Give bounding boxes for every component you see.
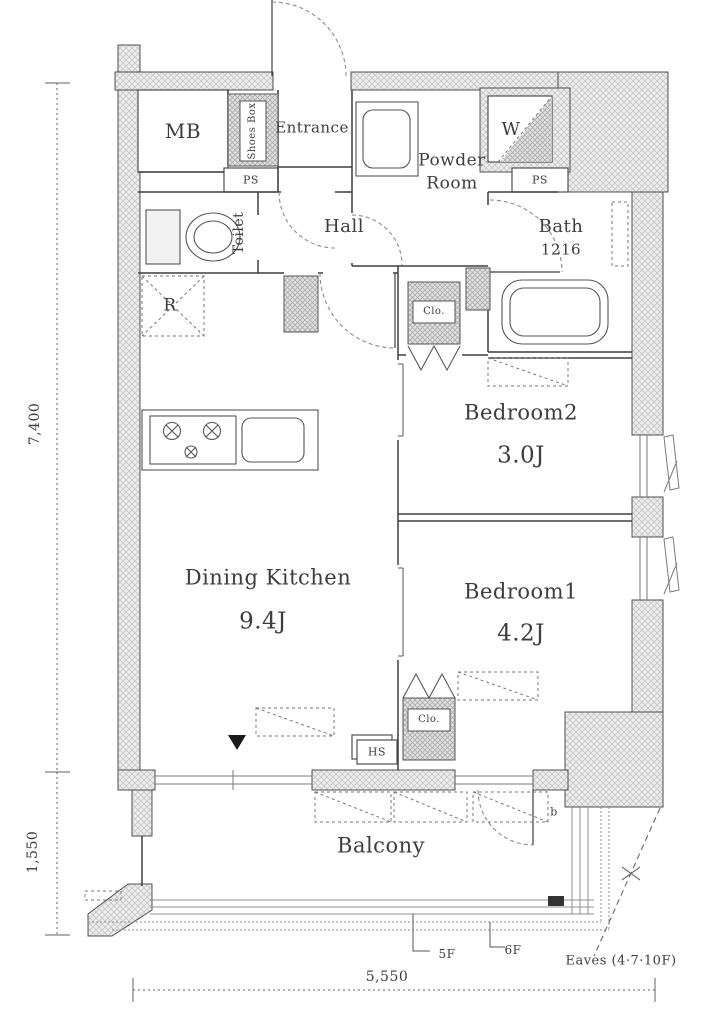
kitchen-counter xyxy=(142,410,318,470)
room-label-entrance: Entrance xyxy=(275,121,349,136)
label-door-b: b xyxy=(550,807,558,818)
leaders xyxy=(413,914,505,951)
annotation-5f: 5F xyxy=(439,948,456,960)
room-label-dk-size: 9.4J xyxy=(239,611,287,634)
room-label-toilet: Toilet xyxy=(232,212,246,255)
room-label-dining-kitchen: Dining Kitchen xyxy=(185,568,352,589)
label-ps-top: PS xyxy=(243,175,259,186)
room-label-washer: W xyxy=(501,121,520,139)
balcony-railing xyxy=(88,807,609,930)
hall-dk-door-arc xyxy=(320,273,395,348)
balcony-door-arc xyxy=(478,790,533,845)
room-label-bath: Bath xyxy=(539,218,584,236)
floor-plan: MB Shoes Box PS Entrance Powder Room W P… xyxy=(0,0,708,1024)
annotation-6f: 6F xyxy=(505,944,522,956)
room-label-shoes-box: Shoes Box xyxy=(248,102,258,159)
dimension-left-upper: 7,400 xyxy=(28,403,42,446)
room-label-bedroom2: Bedroom2 xyxy=(464,403,578,424)
folding-door-bottom xyxy=(403,674,455,698)
eaves-line xyxy=(594,808,660,956)
balcony-drain xyxy=(548,896,564,906)
room-label-bedroom1-size: 4.2J xyxy=(497,623,545,646)
label-ps-right: PS xyxy=(532,175,548,186)
section-marker xyxy=(228,735,246,750)
toilet-tank xyxy=(146,210,180,264)
annotation-eaves: Eaves (4·7·10F) xyxy=(565,955,676,968)
room-label-balcony: Balcony xyxy=(337,836,425,857)
dimension-bottom: 5,550 xyxy=(366,970,409,984)
room-label-mb: MB xyxy=(165,121,201,141)
room-label-bath-size: 1216 xyxy=(541,243,581,258)
folding-door-mid xyxy=(408,346,460,370)
exterior-walls xyxy=(88,45,668,936)
label-closet-mid: Clo. xyxy=(423,307,445,317)
hall-storage xyxy=(284,276,318,332)
room-label-bedroom1: Bedroom1 xyxy=(464,582,578,603)
room-label-powder-2: Room xyxy=(426,176,477,193)
room-label-powder-1: Powder xyxy=(418,153,486,170)
label-closet-bottom: Clo. xyxy=(418,715,440,725)
floorplan-graphics xyxy=(0,0,708,1024)
bath-shelf xyxy=(612,202,628,266)
label-hs: HS xyxy=(368,747,386,758)
room-label-hall: Hall xyxy=(324,218,364,236)
dimension-left-lower: 1,550 xyxy=(26,831,40,874)
small-storage xyxy=(466,268,490,310)
room-label-bedroom2-size: 3.0J xyxy=(497,445,545,468)
label-refrigerator: R xyxy=(163,298,176,315)
entrance-door-arc xyxy=(272,2,346,76)
